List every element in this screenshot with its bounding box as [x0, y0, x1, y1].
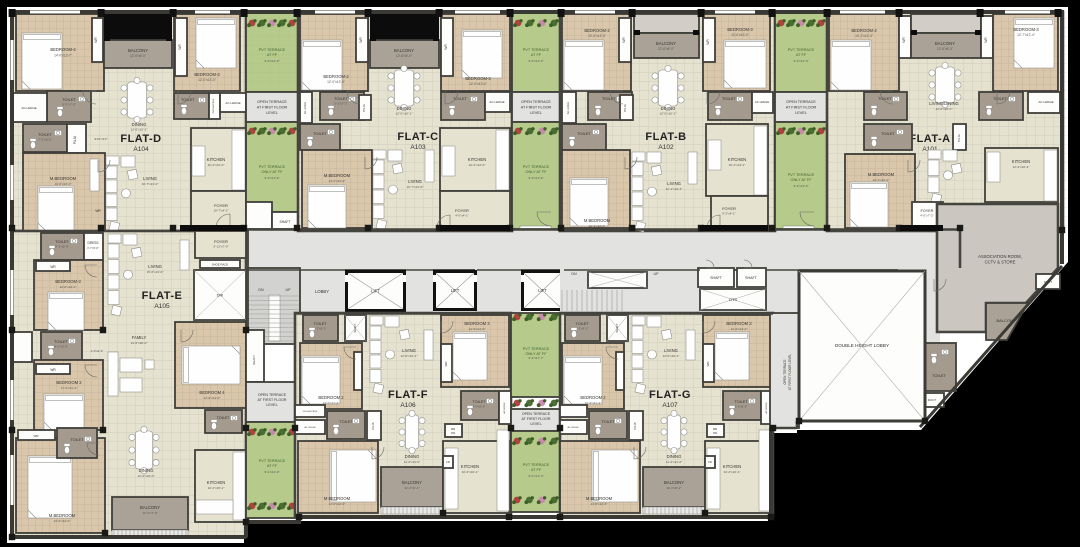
svg-text:8'-1"x5'-0": 8'-1"x5'-0" — [55, 245, 68, 249]
svg-text:5'-2"x7'-2": 5'-2"x7'-2" — [62, 103, 75, 107]
svg-text:M.BEDROOM: M.BEDROOM — [49, 513, 76, 518]
svg-text:9'-2"x13'-0": 9'-2"x13'-0" — [528, 474, 543, 478]
svg-text:UP: UP — [286, 288, 292, 292]
svg-text:KITCHEN: KITCHEN — [468, 157, 486, 162]
svg-text:LEVEL: LEVEL — [795, 111, 807, 115]
svg-text:OPEN TERRACE: OPEN TERRACE — [258, 393, 287, 397]
svg-text:PUJA: PUJA — [362, 104, 366, 112]
svg-text:LIFT: LIFT — [451, 288, 460, 293]
svg-text:OPEN TERRACE: OPEN TERRACE — [783, 359, 787, 384]
svg-text:BALCONY: BALCONY — [394, 48, 414, 53]
svg-text:13'-6"x20'-0": 13'-6"x20'-0" — [131, 341, 148, 345]
svg-text:TOILET: TOILET — [722, 96, 736, 101]
svg-text:SHAFT: SHAFT — [615, 323, 619, 332]
svg-text:OTS: OTS — [729, 297, 738, 302]
svg-text:TOILET: TOILET — [932, 373, 946, 378]
svg-text:OPEN TERRACE: OPEN TERRACE — [786, 100, 816, 104]
svg-text:DN: DN — [258, 288, 264, 292]
svg-text:12'-0"x13'-0": 12'-0"x13'-0" — [198, 78, 216, 82]
svg-text:10'-2"x15'-2": 10'-2"x15'-2" — [208, 486, 225, 490]
svg-text:BEDROOM-3: BEDROOM-3 — [465, 76, 491, 81]
svg-text:12'-6"x5'-0": 12'-6"x5'-0" — [937, 47, 953, 51]
svg-text:6'-2"x3'-2": 6'-2"x3'-2" — [314, 327, 327, 331]
svg-text:11'-0"x5'-2": 11'-0"x5'-2" — [405, 486, 420, 490]
svg-text:TOILET: TOILET — [993, 96, 1007, 101]
svg-text:12'-6"x5'-0": 12'-6"x5'-0" — [658, 47, 674, 51]
svg-text:DINING: DINING — [661, 106, 676, 111]
svg-text:KITCHEN: KITCHEN — [1012, 159, 1030, 164]
svg-text:12'-2"x10'-0": 12'-2"x10'-0" — [138, 474, 155, 478]
svg-text:FLAT-D: FLAT-D — [120, 133, 161, 145]
svg-text:TOILET: TOILET — [472, 400, 486, 404]
svg-text:FOYER: FOYER — [722, 206, 736, 211]
svg-text:12'-0"x14'-0": 12'-0"x14'-0" — [731, 327, 748, 331]
svg-text:LIVING: LIVING — [664, 348, 678, 353]
svg-text:TOILET: TOILET — [313, 131, 327, 136]
svg-text:LEVEL: LEVEL — [530, 111, 542, 115]
svg-text:WR: WR — [706, 39, 710, 45]
svg-text:TOILET: TOILET — [62, 97, 76, 102]
svg-text:BALCONY: BALCONY — [128, 48, 148, 53]
svg-text:ASSOCIATION ROOM,: ASSOCIATION ROOM, — [978, 254, 1022, 259]
svg-text:LOBBY: LOBBY — [315, 289, 329, 294]
svg-text:PVT TERRACE: PVT TERRACE — [259, 459, 286, 463]
svg-text:A107: A107 — [662, 402, 678, 409]
svg-text:WR: WR — [50, 368, 56, 372]
svg-text:BEDROOM 3: BEDROOM 3 — [726, 321, 752, 326]
svg-text:FLAT-C: FLAT-C — [397, 131, 438, 143]
svg-text:BEDROOM 4: BEDROOM 4 — [199, 390, 225, 395]
svg-text:PVT TERRACE: PVT TERRACE — [788, 48, 815, 52]
svg-text:AG LEDGE: AG LEDGE — [304, 101, 307, 114]
svg-text:FLAT-E: FLAT-E — [142, 290, 183, 302]
svg-text:13'-1"x12'-4": 13'-1"x12'-4" — [855, 34, 873, 38]
svg-text:SHAFT: SHAFT — [353, 323, 357, 332]
svg-text:A104: A104 — [133, 146, 149, 153]
svg-text:TOILET: TOILET — [602, 96, 616, 101]
svg-text:8'-0"x5'-0": 8'-0"x5'-0" — [473, 405, 486, 409]
svg-text:12'-2"x7'-0": 12'-2"x7'-0" — [142, 511, 157, 515]
svg-text:10'-7"x13'-0": 10'-7"x13'-0" — [142, 182, 159, 186]
svg-text:TOILET: TOILET — [575, 322, 589, 326]
svg-text:13'-0"x13'-0": 13'-0"x13'-0" — [329, 179, 346, 183]
svg-text:WR: WR — [359, 37, 363, 43]
svg-text:LIVING: LIVING — [408, 179, 422, 184]
svg-text:WM: WM — [451, 428, 455, 431]
svg-text:UP: UP — [654, 272, 660, 276]
svg-text:AC LEDGE: AC LEDGE — [225, 101, 240, 105]
svg-text:9'-2"x13'-6": 9'-2"x13'-6" — [264, 176, 279, 180]
svg-text:12'-1"x12'-0": 12'-1"x12'-0" — [589, 224, 606, 228]
svg-text:WR: WR — [95, 209, 101, 213]
svg-text:FOYER: FOYER — [214, 203, 228, 208]
svg-text:WR: WR — [50, 265, 56, 269]
svg-text:WR: WR — [706, 361, 710, 367]
svg-text:AG LEDGE: AG LEDGE — [567, 101, 570, 114]
svg-text:TOILET: TOILET — [734, 400, 748, 404]
svg-text:12'-0"x13'-0": 12'-0"x13'-0" — [327, 80, 345, 84]
svg-text:12'-2"x10'-2": 12'-2"x10'-2" — [1013, 165, 1030, 169]
svg-text:AG LEDGE: AG LEDGE — [21, 106, 36, 110]
svg-text:8'-1"x5'-0": 8'-1"x5'-0" — [54, 345, 67, 349]
svg-text:AC LEDGE: AC LEDGE — [489, 100, 504, 104]
svg-text:4'-0"x7'-2": 4'-0"x7'-2" — [920, 214, 933, 218]
svg-text:DOG ACCESS: DOG ACCESS — [303, 410, 318, 413]
svg-text:OPEN TERRACE: OPEN TERRACE — [521, 100, 551, 104]
svg-text:12'-0"x19'-1": 12'-0"x19'-1" — [401, 354, 418, 358]
svg-text:AC LEDGE: AC LEDGE — [765, 402, 768, 414]
svg-text:TOILET: TOILET — [577, 131, 591, 136]
svg-text:FAMILY: FAMILY — [132, 335, 147, 340]
svg-text:4'-0"x4'-1": 4'-0"x4'-1" — [455, 214, 468, 218]
svg-text:PVT TERRACE: PVT TERRACE — [523, 165, 550, 169]
svg-text:10'-7"x13'-0": 10'-7"x13'-0" — [407, 185, 424, 189]
svg-text:AT FF: AT FF — [531, 468, 542, 472]
svg-text:FOYER: FOYER — [920, 209, 933, 213]
svg-text:BALCONY: BALCONY — [664, 480, 684, 485]
svg-text:TOILET: TOILET — [38, 132, 52, 137]
svg-text:TOILET: TOILET — [313, 322, 327, 326]
svg-text:13'-6"x12'-0": 13'-6"x12'-0" — [54, 519, 71, 523]
svg-text:12'-0"x13'-0": 12'-0"x13'-0" — [731, 33, 749, 37]
svg-text:FLAT-A: FLAT-A — [909, 133, 950, 145]
svg-text:9'-2"x17'-7": 9'-2"x17'-7" — [528, 356, 543, 360]
svg-text:7'-2"x5'-2": 7'-2"x5'-2" — [38, 138, 51, 142]
svg-text:10'-2"x10'-1": 10'-2"x10'-1" — [462, 470, 479, 474]
svg-text:13'-0"x13'-0": 13'-0"x13'-0" — [55, 182, 72, 186]
svg-text:BALCONY: BALCONY — [935, 41, 955, 46]
svg-text:LIVING: LIVING — [667, 181, 681, 186]
svg-text:9'10"x3'2": 9'10"x3'2" — [94, 137, 107, 141]
svg-text:PUJA: PUJA — [623, 104, 627, 112]
svg-text:AT FIRST FLOOR LEVEL: AT FIRST FLOOR LEVEL — [788, 354, 792, 391]
svg-text:FLAT-F: FLAT-F — [388, 389, 428, 401]
svg-text:A103: A103 — [410, 144, 426, 151]
svg-text:DINING: DINING — [397, 106, 412, 111]
svg-text:TOILET: TOILET — [217, 416, 230, 420]
svg-text:PVT TERRACE: PVT TERRACE — [259, 48, 286, 52]
svg-text:AT FIRST FLOOR: AT FIRST FLOOR — [522, 417, 551, 421]
svg-text:AT FIRST FLOOR: AT FIRST FLOOR — [786, 106, 817, 110]
svg-text:TOILET: TOILET — [334, 96, 348, 101]
svg-text:LIVING: LIVING — [402, 348, 416, 353]
svg-text:10'-4"x12'-0": 10'-4"x12'-0" — [469, 163, 486, 167]
svg-text:10'-2"x10'-1": 10'-2"x10'-1" — [724, 470, 741, 474]
svg-text:TOILET: TOILET — [54, 339, 68, 344]
svg-text:DRESS: DRESS — [88, 241, 99, 245]
svg-text:WM: WM — [713, 428, 717, 431]
svg-text:BALCONY: BALCONY — [140, 505, 160, 510]
svg-text:12'-0"x10'-1": 12'-0"x10'-1" — [396, 112, 413, 116]
svg-text:PUJA: PUJA — [73, 135, 77, 144]
svg-text:WR: WR — [444, 44, 448, 50]
svg-text:OPEN TERRACE: OPEN TERRACE — [522, 412, 551, 416]
svg-text:9'-2"x13'-0": 9'-2"x13'-0" — [264, 470, 279, 474]
svg-text:9'-2"x13'-0": 9'-2"x13'-0" — [793, 59, 808, 63]
svg-text:WR: WR — [902, 37, 906, 43]
svg-text:LIVING: LIVING — [148, 264, 162, 269]
svg-text:12'-1"x12'-0": 12'-1"x12'-0" — [873, 178, 890, 182]
svg-text:AC LEDGE: AC LEDGE — [304, 426, 316, 429]
svg-text:AC LEDGE: AC LEDGE — [1038, 100, 1053, 104]
svg-text:FLAT-G: FLAT-G — [649, 389, 691, 401]
svg-text:DOG ACCESS: DOG ACCESS — [212, 98, 215, 113]
svg-text:12'-6"x20'-0": 12'-6"x20'-0" — [936, 107, 953, 111]
svg-text:BEDROOM 2: BEDROOM 2 — [580, 395, 606, 400]
svg-text:M.BEDROOM: M.BEDROOM — [584, 218, 611, 223]
svg-text:DINING: DINING — [132, 122, 147, 127]
svg-text:5'-11"x7'-0": 5'-11"x7'-0" — [214, 245, 229, 249]
svg-text:12'-0"x13'-0": 12'-0"x13'-0" — [588, 34, 606, 38]
svg-text:BEDROOM-2: BEDROOM-2 — [851, 28, 877, 33]
svg-text:WR: WR — [178, 44, 182, 50]
svg-text:AC LEDGE: AC LEDGE — [755, 100, 769, 104]
svg-text:AT FF: AT FF — [267, 464, 278, 468]
svg-text:SHAFT: SHAFT — [279, 220, 290, 224]
svg-text:9'-2"x13'-0": 9'-2"x13'-0" — [264, 59, 279, 63]
svg-text:BEDROOM-3: BEDROOM-3 — [194, 72, 220, 77]
svg-text:KITCHEN: KITCHEN — [723, 464, 741, 469]
svg-text:11'-0"x5'-2": 11'-0"x5'-2" — [667, 486, 682, 490]
svg-text:WR: WR — [622, 37, 626, 43]
svg-text:9'-2"x13'-6": 9'-2"x13'-6" — [793, 184, 808, 188]
svg-text:LIVING/DINING: LIVING/DINING — [929, 101, 959, 106]
svg-text:11'-0"x11'-0": 11'-0"x11'-0" — [404, 460, 420, 464]
svg-text:14'-0"x13'-7": 14'-0"x13'-7" — [54, 54, 72, 58]
svg-text:KITCHEN: KITCHEN — [207, 480, 225, 485]
svg-text:TOILET: TOILET — [601, 420, 615, 424]
svg-text:TOILET: TOILET — [881, 131, 895, 136]
svg-text:TOILET: TOILET — [453, 96, 467, 101]
svg-text:AT FIRST FLOOR: AT FIRST FLOOR — [521, 106, 552, 110]
svg-text:FLAT-B: FLAT-B — [645, 131, 686, 143]
svg-text:KITCHEN: KITCHEN — [461, 464, 479, 469]
svg-text:14'-6"x12'-6": 14'-6"x12'-6" — [591, 502, 608, 506]
svg-text:AT FIRST FLOOR: AT FIRST FLOOR — [257, 106, 288, 110]
svg-text:KITCHEN: KITCHEN — [728, 157, 746, 162]
svg-text:WR: WR — [444, 361, 448, 367]
svg-text:12'-1"x13'-4": 12'-1"x13'-4" — [666, 187, 683, 191]
svg-text:TOILET: TOILET — [339, 420, 353, 424]
svg-text:FOYER: FOYER — [214, 239, 228, 244]
svg-text:FR: FR — [446, 460, 450, 464]
svg-text:ONLY AT FF: ONLY AT FF — [790, 178, 812, 182]
svg-text:BEDROOM-3: BEDROOM-3 — [1013, 27, 1039, 32]
svg-text:BEDROOM-3: BEDROOM-3 — [727, 27, 753, 32]
svg-text:12'-6"x13'-0": 12'-6"x13'-0" — [204, 396, 221, 400]
svg-text:LEVEL: LEVEL — [266, 111, 278, 115]
svg-text:9'-2"x13'-6": 9'-2"x13'-6" — [528, 176, 543, 180]
svg-text:M.BEDROOM: M.BEDROOM — [50, 176, 77, 181]
svg-text:PVT TERRACE: PVT TERRACE — [523, 347, 550, 351]
svg-text:BEDROOM 3: BEDROOM 3 — [464, 321, 490, 326]
svg-text:TOILET: TOILET — [70, 438, 84, 442]
svg-text:BEDROOM-3: BEDROOM-3 — [55, 279, 81, 284]
svg-text:SHAFT: SHAFT — [745, 276, 758, 280]
svg-text:DINING: DINING — [139, 468, 154, 473]
svg-text:WR: WR — [34, 434, 40, 438]
svg-text:14'-0"x12'-0": 14'-0"x12'-0" — [329, 502, 346, 506]
svg-text:DOUBLE HEIGHT LOBBY: DOUBLE HEIGHT LOBBY — [835, 343, 889, 348]
svg-text:ONLY AT FF: ONLY AT FF — [261, 170, 283, 174]
svg-text:PVT TERRACE: PVT TERRACE — [788, 173, 815, 177]
svg-text:LEVEL: LEVEL — [266, 403, 277, 407]
svg-text:CCTV & STORE: CCTV & STORE — [985, 260, 1016, 265]
svg-text:5'-2"x7'-2": 5'-2"x7'-2" — [334, 102, 347, 106]
svg-text:DUCT: DUCT — [928, 398, 936, 402]
svg-text:LIVING: LIVING — [143, 176, 157, 181]
svg-text:TOILET: TOILET — [878, 96, 892, 101]
svg-text:DINING: DINING — [405, 454, 420, 459]
svg-text:KITCHEN: KITCHEN — [207, 157, 225, 162]
svg-text:PUJA: PUJA — [957, 134, 961, 142]
svg-text:12'-0"x10'-1": 12'-0"x10'-1" — [131, 128, 148, 132]
svg-text:BEDROOM 2: BEDROOM 2 — [318, 395, 344, 400]
svg-text:12'-0"x14'-0": 12'-0"x14'-0" — [469, 327, 486, 331]
svg-text:OPEN TERRACE: OPEN TERRACE — [257, 100, 287, 104]
svg-text:PUJA: PUJA — [633, 422, 637, 429]
svg-text:SHAFT: SHAFT — [710, 276, 723, 280]
svg-text:17'-0"x11'-4": 17'-0"x11'-4" — [61, 386, 78, 390]
svg-text:12'-0"x5'-0": 12'-0"x5'-0" — [130, 54, 146, 58]
svg-text:BEDROOM 2: BEDROOM 2 — [56, 380, 82, 385]
svg-text:SHAFT: SHAFT — [252, 355, 256, 365]
svg-text:M.BEDROOM: M.BEDROOM — [868, 172, 895, 177]
svg-text:FR: FR — [708, 460, 712, 464]
svg-text:BEDROOM-2: BEDROOM-2 — [584, 28, 610, 33]
svg-text:DINING: DINING — [667, 454, 682, 459]
svg-text:8'-0"x5'-0": 8'-0"x5'-0" — [735, 405, 748, 409]
svg-text:10'-4"x13'-1": 10'-4"x13'-1" — [729, 163, 746, 167]
svg-text:SHOE RACK: SHOE RACK — [212, 263, 229, 267]
svg-text:WR: WR — [94, 37, 98, 43]
svg-text:3'-7"x5'-8": 3'-7"x5'-8" — [87, 246, 99, 250]
svg-text:LIFT: LIFT — [371, 289, 380, 294]
svg-text:12'-0"x10'-1": 12'-0"x10'-1" — [660, 112, 677, 116]
svg-text:10'-4"x12'-0": 10'-4"x12'-0" — [208, 163, 225, 167]
svg-text:6'-2"x3'-2": 6'-2"x3'-2" — [576, 327, 589, 331]
svg-text:AT FF: AT FF — [267, 53, 278, 57]
svg-text:9'-2"x4'-1": 9'-2"x4'-1" — [722, 212, 735, 216]
svg-text:BALCONY: BALCONY — [656, 41, 676, 46]
svg-text:PUJA: PUJA — [371, 422, 375, 429]
svg-text:AC LEDGE: AC LEDGE — [567, 426, 579, 429]
svg-text:DN: DN — [571, 272, 577, 276]
svg-text:M BEDROOM: M BEDROOM — [324, 496, 351, 501]
svg-text:A102: A102 — [658, 144, 674, 151]
svg-text:PVT TERRACE: PVT TERRACE — [259, 165, 286, 169]
svg-text:12'-0"x13'-0": 12'-0"x13'-0" — [60, 285, 77, 289]
svg-text:AT FF: AT FF — [531, 53, 542, 57]
svg-text:A105: A105 — [154, 303, 170, 310]
svg-text:12'-0"x13'-0": 12'-0"x13'-0" — [469, 82, 487, 86]
svg-text:FOYER: FOYER — [455, 208, 469, 213]
svg-text:TOILET: TOILET — [55, 239, 69, 244]
svg-text:LEVEL: LEVEL — [530, 422, 541, 426]
svg-text:15'-6"x13'-6": 15'-6"x13'-6" — [147, 270, 164, 274]
svg-text:11'-2"x11'-2": 11'-2"x11'-2" — [666, 460, 682, 464]
svg-text:BEDROOM-2: BEDROOM-2 — [323, 74, 349, 79]
svg-text:LIFT: LIFT — [538, 288, 547, 293]
svg-text:BEDROOM-2: BEDROOM-2 — [50, 47, 76, 52]
svg-text:AT FIRST FLOOR: AT FIRST FLOOR — [258, 398, 287, 402]
svg-text:10'-7"x4'-1": 10'-7"x4'-1" — [213, 209, 228, 213]
svg-text:12'-0"x19'-1": 12'-0"x19'-1" — [663, 354, 680, 358]
svg-text:PVT TERRACE: PVT TERRACE — [523, 463, 550, 467]
svg-text:M.BEDROOM: M.BEDROOM — [586, 496, 613, 501]
svg-text:TOILET: TOILET — [181, 97, 195, 102]
svg-text:DIK: DIK — [217, 293, 224, 298]
svg-text:AT FF: AT FF — [796, 53, 807, 57]
svg-text:12'-7"x12'-4": 12'-7"x12'-4" — [1017, 33, 1035, 37]
svg-text:PVT TERRACE: PVT TERRACE — [523, 48, 550, 52]
svg-text:9'-2"x13'-0": 9'-2"x13'-0" — [528, 59, 543, 63]
svg-text:4'-0"x2'-0": 4'-0"x2'-0" — [91, 349, 104, 353]
svg-text:A106: A106 — [400, 402, 416, 409]
svg-text:ONLY AT FF: ONLY AT FF — [525, 170, 547, 174]
svg-text:WR: WR — [984, 37, 988, 43]
svg-text:12'-6"x5'-0": 12'-6"x5'-0" — [396, 54, 412, 58]
svg-text:BALCONY: BALCONY — [402, 480, 422, 485]
svg-text:M.BEDROOM: M.BEDROOM — [324, 173, 351, 178]
svg-text:AC LEDGE: AC LEDGE — [503, 402, 506, 414]
